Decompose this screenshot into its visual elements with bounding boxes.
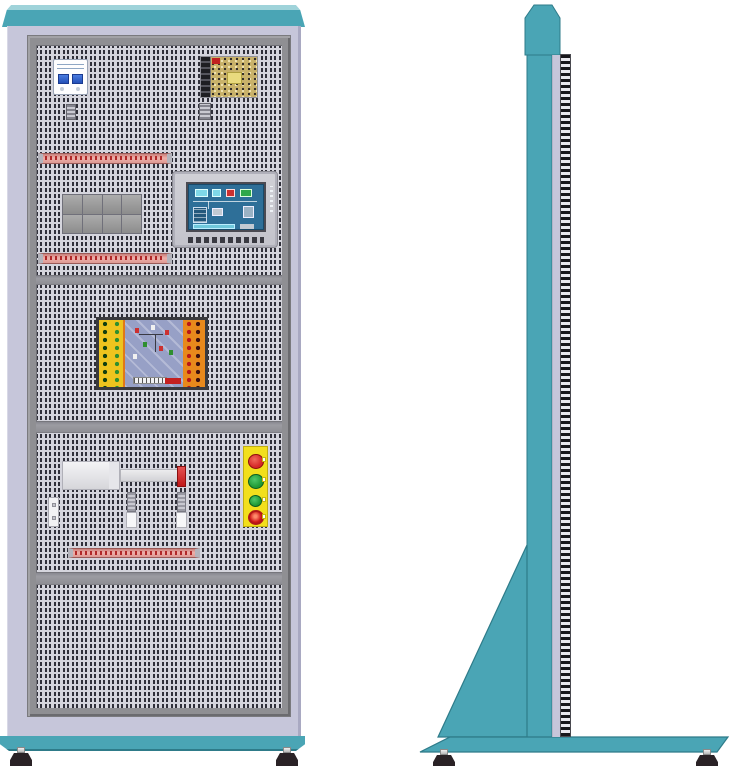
cabinet-drawing (0, 0, 730, 766)
side-louvered-strip (560, 54, 571, 737)
side-top-cap (525, 5, 560, 55)
side-upright-column (527, 55, 552, 737)
side-triangular-gusset (438, 545, 527, 737)
leveling-foot (696, 749, 718, 766)
side-base-plate (420, 737, 728, 752)
foot-stem (703, 749, 711, 755)
leveling-foot (433, 749, 455, 766)
side-frame-strip (552, 55, 560, 737)
foot-stem (440, 749, 448, 755)
foot-pad (696, 755, 718, 766)
foot-pad (433, 755, 455, 766)
side-view-silhouette (0, 0, 730, 766)
